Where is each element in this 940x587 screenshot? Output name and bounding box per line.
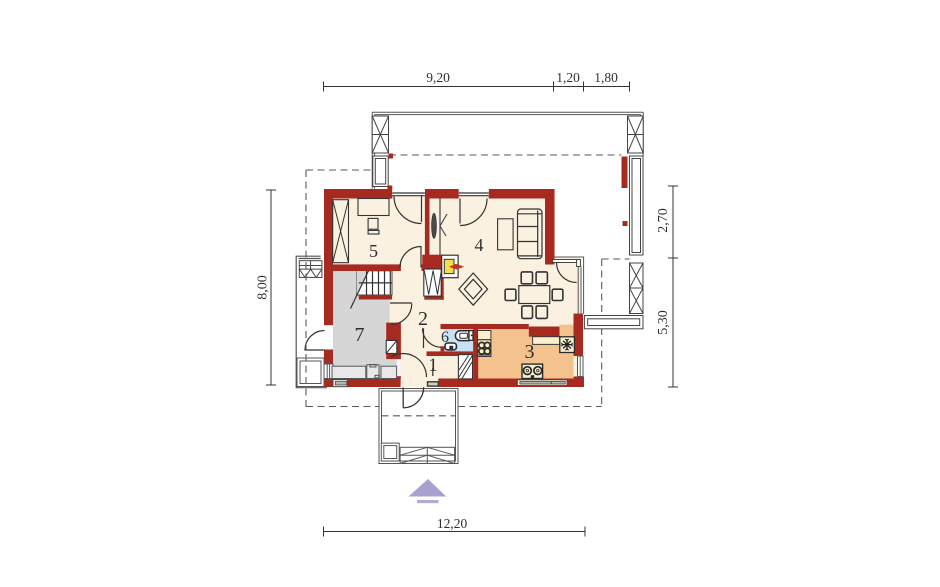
- svg-text:9,20: 9,20: [426, 70, 450, 85]
- svg-text:2,70: 2,70: [656, 208, 671, 233]
- svg-text:5: 5: [369, 241, 378, 261]
- svg-text:4: 4: [475, 235, 484, 255]
- svg-text:5,30: 5,30: [656, 310, 671, 335]
- svg-text:6: 6: [441, 329, 449, 346]
- svg-text:8,00: 8,00: [256, 275, 271, 300]
- svg-text:12,20: 12,20: [437, 516, 468, 531]
- svg-text:1: 1: [428, 355, 438, 376]
- svg-text:7: 7: [355, 324, 365, 346]
- svg-text:1,80: 1,80: [594, 70, 618, 85]
- svg-text:2: 2: [418, 308, 428, 330]
- svg-text:1,20: 1,20: [556, 70, 580, 85]
- svg-text:3: 3: [525, 341, 535, 363]
